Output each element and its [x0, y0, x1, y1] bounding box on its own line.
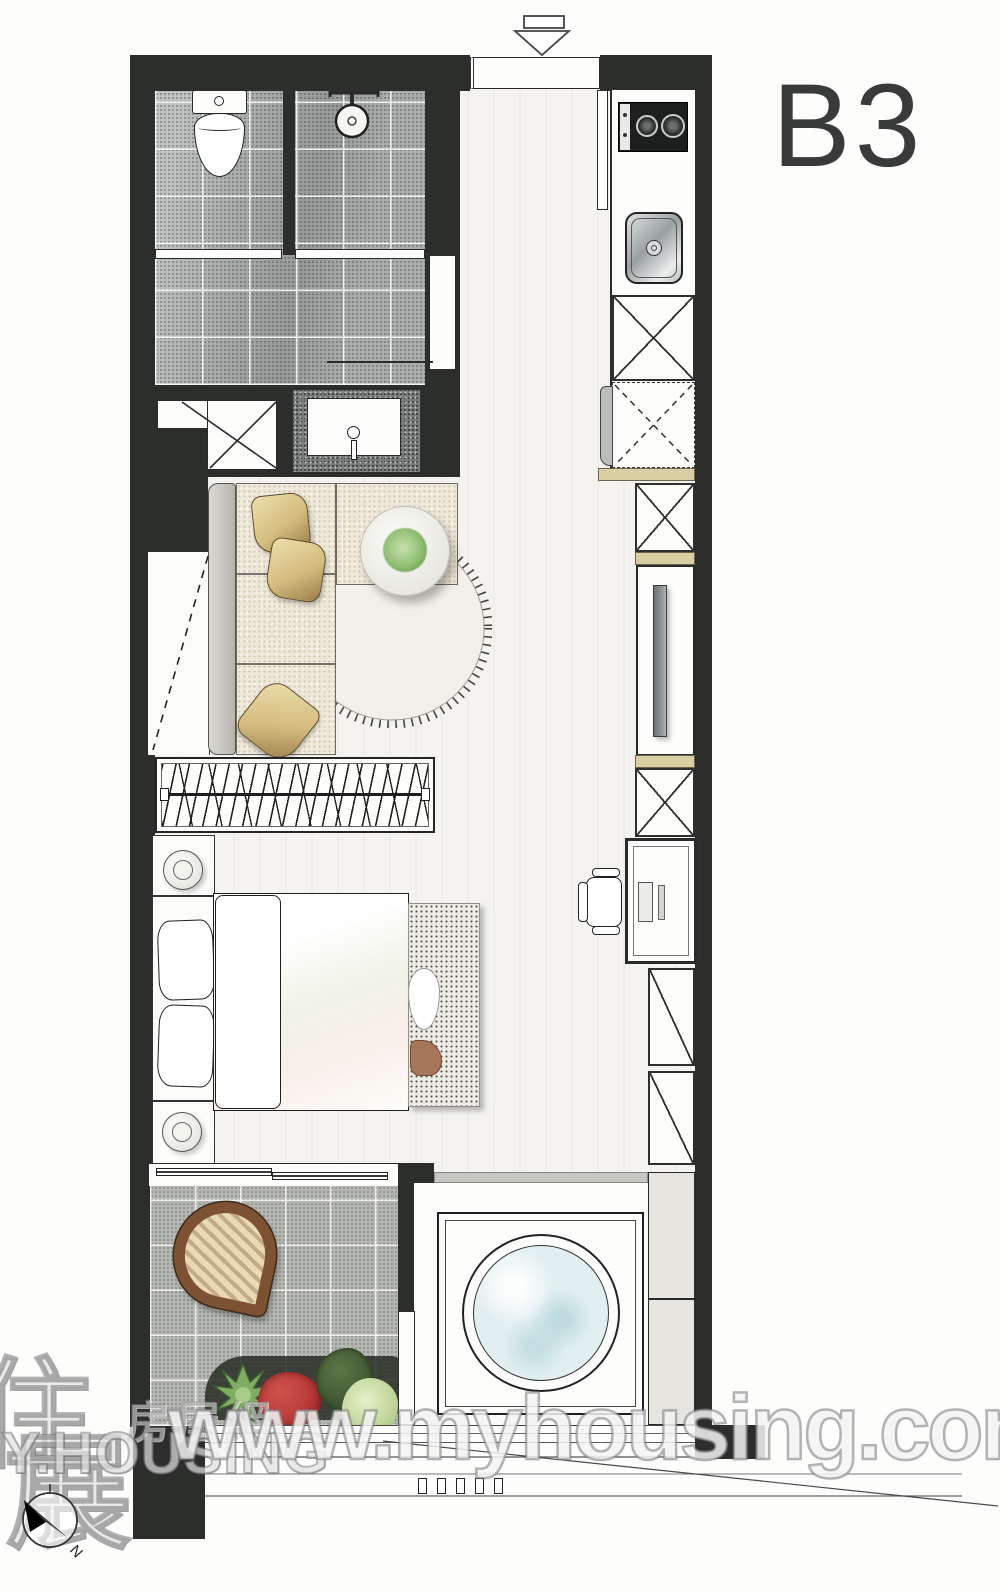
logo-cjk-char: 住	[0, 1318, 92, 1492]
toilet-seat-line	[198, 124, 241, 131]
stove-burner-icon	[636, 115, 658, 137]
refrigerator-dashed-x	[613, 383, 694, 467]
bed-pillow	[157, 1004, 216, 1088]
wall-bottom-right-foot	[695, 1425, 765, 1459]
sink-drain-dot	[651, 245, 657, 251]
balcony-door-panel	[156, 1168, 272, 1176]
sofa-backrest	[208, 483, 236, 755]
balcony-service-door	[398, 1311, 415, 1425]
counter-strip	[635, 552, 695, 565]
tv-panel	[653, 585, 667, 737]
headboard-divider	[153, 895, 214, 897]
wardrobe-rod	[165, 793, 425, 796]
headboard-divider	[153, 1100, 214, 1102]
laptop-icon	[638, 882, 653, 922]
compass-icon: N	[8, 1478, 108, 1578]
sofa-pillow	[264, 536, 329, 604]
desk-chair-armrest	[592, 926, 620, 935]
table-plant-icon	[383, 528, 427, 572]
nightstand-lamp-inner	[172, 1122, 192, 1142]
storage-cabinet-diagonal	[648, 968, 695, 1066]
planter-ledge-line	[205, 1433, 695, 1434]
wardrobe-rod-end	[160, 788, 169, 801]
drain-block	[418, 1478, 427, 1494]
bed-duvet-fold	[215, 895, 281, 1109]
storage-cabinet-l-body	[207, 400, 277, 470]
wall-living-corner	[150, 470, 208, 554]
stove-control-strip	[620, 104, 630, 150]
bathroom-door	[429, 255, 456, 370]
wall-bathroom-divider	[283, 88, 295, 255]
keyboard-icon	[658, 885, 665, 920]
lounge-chair-weave	[177, 1206, 273, 1305]
entrance-door-leaf	[597, 90, 608, 210]
red-flower-bush	[258, 1372, 322, 1428]
unit-label: B3	[772, 58, 924, 194]
wall-niche	[148, 552, 210, 755]
bed-pillow	[157, 919, 216, 1001]
washer-drum	[473, 1245, 609, 1381]
drain-block	[437, 1478, 446, 1494]
counter-strip	[635, 755, 695, 768]
boundary-diagonal-line	[383, 1441, 998, 1506]
balcony-door-panel	[272, 1172, 388, 1180]
bathroom-half-wall	[155, 249, 282, 259]
nightstand-lamp-inner	[173, 860, 193, 880]
laundry-counter-strip	[434, 1172, 648, 1183]
wardrobe	[155, 757, 435, 833]
floorplan-page: B3 住 展 房屋網 MY.HOUSING www.myhousing.com.…	[0, 0, 1000, 1592]
entrance-arrow-icon	[488, 10, 588, 60]
planter-ledge	[205, 1425, 695, 1443]
stove-burner-icon	[661, 114, 685, 138]
entrance-door-panel	[470, 57, 600, 89]
storage-cabinet-x	[635, 483, 695, 552]
vanity-faucet-stem	[351, 440, 357, 460]
toilet-flush-button	[214, 96, 224, 106]
refrigerator-space	[612, 382, 695, 468]
bathroom-half-wall	[295, 249, 425, 259]
refrigerator-door	[600, 386, 613, 466]
drain-block	[456, 1478, 465, 1494]
drain-block	[475, 1478, 484, 1494]
utility-cabinet-divider	[649, 1298, 694, 1300]
storage-cabinet-x	[612, 295, 695, 381]
wardrobe-rod-end	[421, 788, 430, 801]
compass-north-label: N	[66, 1542, 86, 1561]
drain-block	[494, 1478, 503, 1494]
storage-cabinet-diagonal	[648, 1071, 695, 1165]
wall-top-left	[130, 55, 470, 91]
stove-knob	[623, 113, 627, 117]
shower-head-icon	[322, 84, 392, 144]
sofa-seat-divider	[237, 663, 335, 665]
stove-knob	[623, 133, 627, 137]
storage-cabinet-x	[635, 768, 695, 837]
wall-right	[695, 55, 712, 1427]
counter-strip	[598, 468, 695, 481]
wall-bottom-left-block	[133, 1425, 205, 1539]
desk-chair	[586, 877, 622, 927]
desk-chair-back	[578, 882, 588, 922]
desk-chair-armrest	[592, 868, 620, 877]
vanity-faucet-icon	[347, 426, 360, 439]
